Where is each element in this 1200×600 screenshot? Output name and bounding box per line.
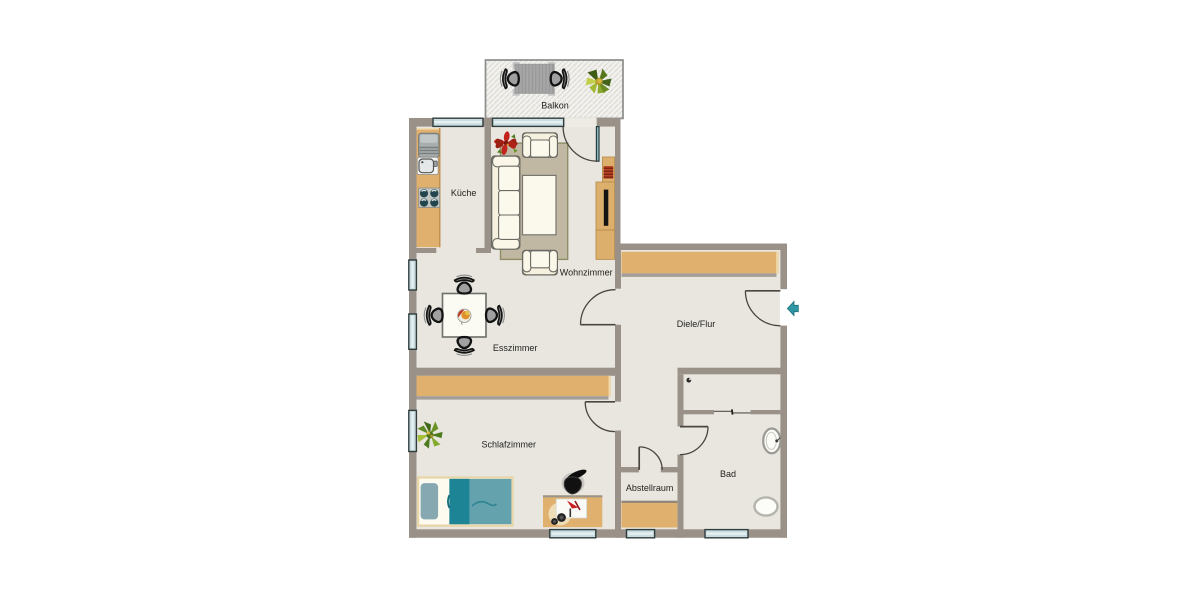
svg-text:Esszimmer: Esszimmer <box>493 343 538 353</box>
svg-text:Balkon: Balkon <box>541 101 569 111</box>
svg-text:Wohnzimmer: Wohnzimmer <box>560 267 613 277</box>
svg-text:Schlafzimmer: Schlafzimmer <box>482 440 537 450</box>
svg-text:Diele/Flur: Diele/Flur <box>677 319 716 329</box>
svg-text:Abstellraum: Abstellraum <box>626 483 674 493</box>
svg-text:Küche: Küche <box>451 188 477 198</box>
svg-text:Bad: Bad <box>720 469 736 479</box>
